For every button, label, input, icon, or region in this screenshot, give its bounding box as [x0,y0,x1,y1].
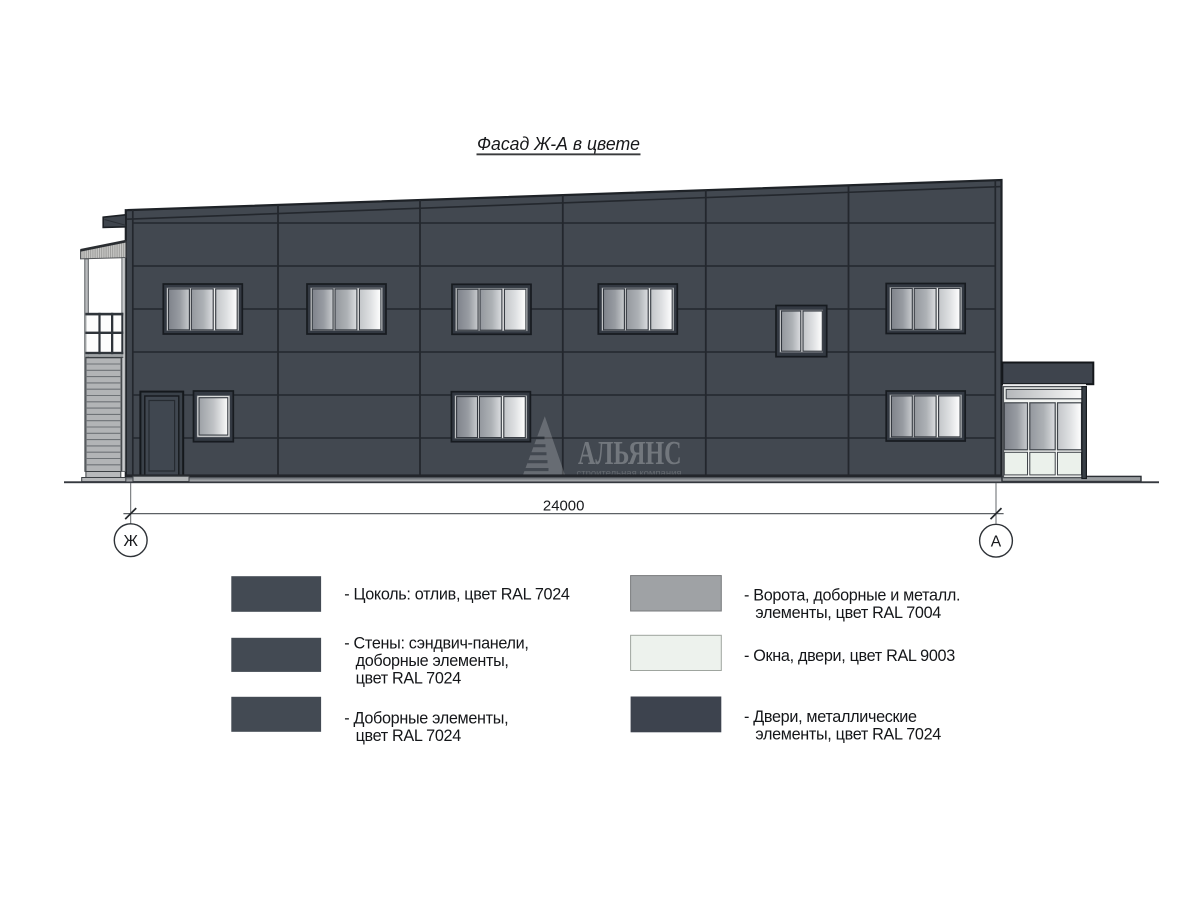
svg-text:- Ворота, доборные и металл.эл: - Ворота, доборные и металл.элементы, цв… [744,587,960,622]
svg-text:А: А [991,533,1002,550]
svg-text:- Окна, двери, цвет RAL 9003: - Окна, двери, цвет RAL 9003 [744,647,955,665]
svg-text:Фасад Ж-А в цвете: Фасад Ж-А в цвете [477,133,640,154]
svg-text:- Двери, металлическиеэлементы: - Двери, металлическиеэлементы, цвет RAL… [744,708,941,743]
svg-text:- Цоколь: отлив, цвет RAL 7024: - Цоколь: отлив, цвет RAL 7024 [344,586,570,604]
svg-text:Ж: Ж [123,533,138,550]
svg-text:- Стены: сэндвич-панели,доборн: - Стены: сэндвич-панели,доборные элемент… [344,635,528,688]
svg-text:24000: 24000 [543,499,585,515]
svg-text:- Доборные элементы,цвет RAL 7: - Доборные элементы,цвет RAL 7024 [344,709,508,745]
